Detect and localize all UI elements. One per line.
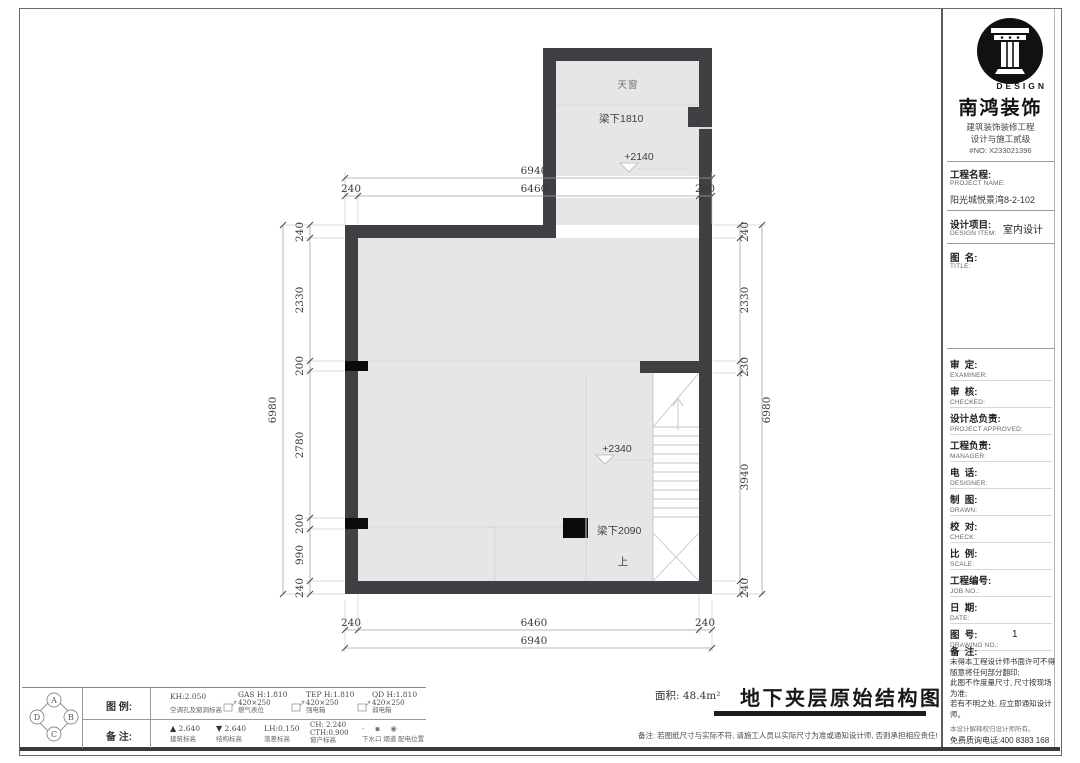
hotline: 免费质询电话:400 8383 168 — [950, 735, 1049, 746]
legend-item-code: KH:2.050 — [170, 692, 222, 701]
tb-remarks: 未得本工程设计师书面许可不得 随意将任何部分翻印; 此图不作度量尺寸, 尺寸按现… — [950, 657, 1053, 720]
note-item-arch-level: ▲ 2.640 建筑标高 — [170, 724, 200, 744]
column-abacus — [991, 28, 1029, 33]
drawing-name-label-en: TITLE: — [950, 263, 971, 270]
note-item-name: 建筑标高 — [170, 736, 200, 744]
footer-note: 备注: 若图纸尺寸与实际不符, 请施工人员以实际尺寸为准或通知设计师, 否则承担… — [638, 730, 938, 741]
row-checked: 审 核:CHECKED: — [950, 381, 1052, 408]
legend-item-gas: GAS H:1.810 420×250 燃气表位 — [238, 690, 287, 715]
legend-item-code: QD H:1.810 — [372, 690, 417, 699]
legend-label: 图 例: — [84, 698, 154, 713]
compass-letter-b: B — [68, 713, 74, 722]
brand-en: DESIGN — [947, 81, 1047, 91]
legend-item-size: 420×250 — [238, 699, 287, 707]
note-item-code: LH:0.150 — [264, 724, 300, 733]
note-item-name: 结构标高 — [216, 736, 246, 744]
compass-letter-d: D — [34, 713, 40, 722]
sheet-border — [19, 8, 1062, 756]
row-project-approved: 设计总负责:PROJECT APPROVED: — [950, 408, 1052, 435]
gas-meter-icon — [223, 700, 237, 712]
legend-divider-v1 — [82, 688, 83, 748]
brand-name: 南鸿装饰 — [947, 93, 1054, 120]
project-name-label-en: PROJECT NAME: — [950, 180, 1005, 187]
drawing-number-value: 1 — [1012, 629, 1018, 640]
company-logo — [975, 16, 1045, 86]
area-label: 面积: 48.4m² — [655, 688, 720, 703]
column-base — [995, 69, 1025, 74]
cert-line-1: 建筑装饰装修工程 — [947, 121, 1054, 133]
tb-remark-label: 备 注: — [950, 644, 977, 658]
note-item-window: CH: 2.240 CTH:0.900 窗户标高 — [310, 721, 349, 745]
column-shaft — [1001, 42, 1019, 67]
compass-letter-c: C — [51, 730, 57, 739]
note-item-fixtures: ‐ ▪ ◉ 下水口 烟道 配电位置 — [362, 724, 424, 744]
fixture-symbols-icon: ‐ ▪ ◉ — [362, 724, 424, 733]
legend-item-size: 420×250 — [372, 699, 417, 707]
legend-table: A B C D 图 例: 备 注: KH:2.050 空调孔及窗洞标高 GAS … — [22, 687, 426, 748]
row-check: 校 对:CHECK: — [950, 516, 1052, 543]
legend-item-code: TEP H:1.810 — [306, 690, 354, 699]
note-item-name: 下水口 烟道 配电位置 — [362, 736, 424, 744]
design-item-label-en: DESIGN ITEM: — [950, 230, 996, 237]
north-compass: A B C D — [28, 691, 80, 743]
frieze-dot — [1001, 36, 1004, 39]
frieze-dot — [1009, 36, 1012, 39]
note-item-name: 窗户标高 — [310, 737, 349, 745]
weak-current-box-icon — [357, 700, 371, 712]
drawing-sheet: 6940 240 6460 240 240 6460 240 6940 240 … — [0, 0, 1080, 763]
note-item-code2: CTH:0.900 — [310, 729, 349, 737]
compass-letter-a: A — [50, 696, 57, 705]
drawing-title: 地下夹层原始结构图 — [740, 682, 943, 711]
legend-item-name: 燃气表位 — [238, 707, 287, 715]
tb-separator — [947, 348, 1054, 349]
design-item-value: 室内设计 — [1003, 221, 1043, 236]
row-designer-phone: 电 话:DESIGNER: — [950, 462, 1052, 489]
legend-item-qd: QD H:1.810 420×250 弱电箱 — [372, 690, 417, 715]
legend-item-name: 弱电箱 — [372, 707, 417, 715]
tb-separator — [947, 210, 1054, 211]
legend-item-size: 420×250 — [306, 699, 354, 707]
note-item-struct-level: ▼ 2.640 结构标高 — [216, 724, 246, 744]
drawing-title-underline — [714, 711, 926, 716]
tb-remark-small: 本设计解释权归设计师所有。 — [950, 723, 1035, 733]
note-item-code: CH: 2.240 — [310, 721, 349, 729]
cert-line-2: 设计与施工贰级 — [947, 133, 1054, 145]
legend-item-name: 空调孔及窗洞标高 — [170, 707, 222, 715]
triangle-up-icon: ▲ — [170, 724, 176, 733]
note-item-code: ▲ 2.640 — [170, 724, 200, 733]
tb-separator — [947, 243, 1054, 244]
note-item-name: 落差标高 — [264, 736, 300, 744]
row-examiner: 审 定:EXAMINER: — [950, 354, 1052, 381]
cert-number: #NO: X233021396 — [947, 146, 1054, 155]
tb-separator — [947, 161, 1054, 162]
legend-item-kh: KH:2.050 空调孔及窗洞标高 — [170, 692, 222, 715]
row-drawn: 制 图:DRAWN: — [950, 489, 1052, 516]
signature-rows: 审 定:EXAMINER: 审 核:CHECKED: 设计总负责:PROJECT… — [950, 354, 1052, 651]
drawing-name-label: 图 名: — [950, 250, 977, 264]
frieze-dot — [1017, 36, 1020, 39]
row-manager: 工程负责:MANAGER: — [950, 435, 1052, 462]
triangle-down-icon: ▼ — [216, 724, 222, 733]
project-name-value: 阳光城悦景湾8-2-102 — [950, 193, 1035, 206]
project-name-label: 工程名程: — [950, 167, 991, 181]
row-date: 日 期:DATE: — [950, 597, 1052, 624]
notes-label: 备 注: — [84, 728, 154, 743]
power-box-icon — [291, 700, 305, 712]
legend-item-tep: TEP H:1.810 420×250 强电箱 — [306, 690, 354, 715]
title-block: DESIGN 南鸿装饰 建筑装饰装修工程 设计与施工贰级 #NO: X23302… — [943, 9, 1055, 747]
note-item-code: ▼ 2.640 — [216, 724, 246, 733]
legend-item-code: GAS H:1.810 — [238, 690, 287, 699]
row-scale: 比 例:SCALE: — [950, 543, 1052, 570]
legend-item-name: 强电箱 — [306, 707, 354, 715]
row-job-no: 工程编号:JOB NO.: — [950, 570, 1052, 597]
note-item-lh: LH:0.150 落差标高 — [264, 724, 300, 744]
design-item-label: 设计项目: — [950, 217, 991, 231]
legend-divider-h — [82, 719, 426, 720]
